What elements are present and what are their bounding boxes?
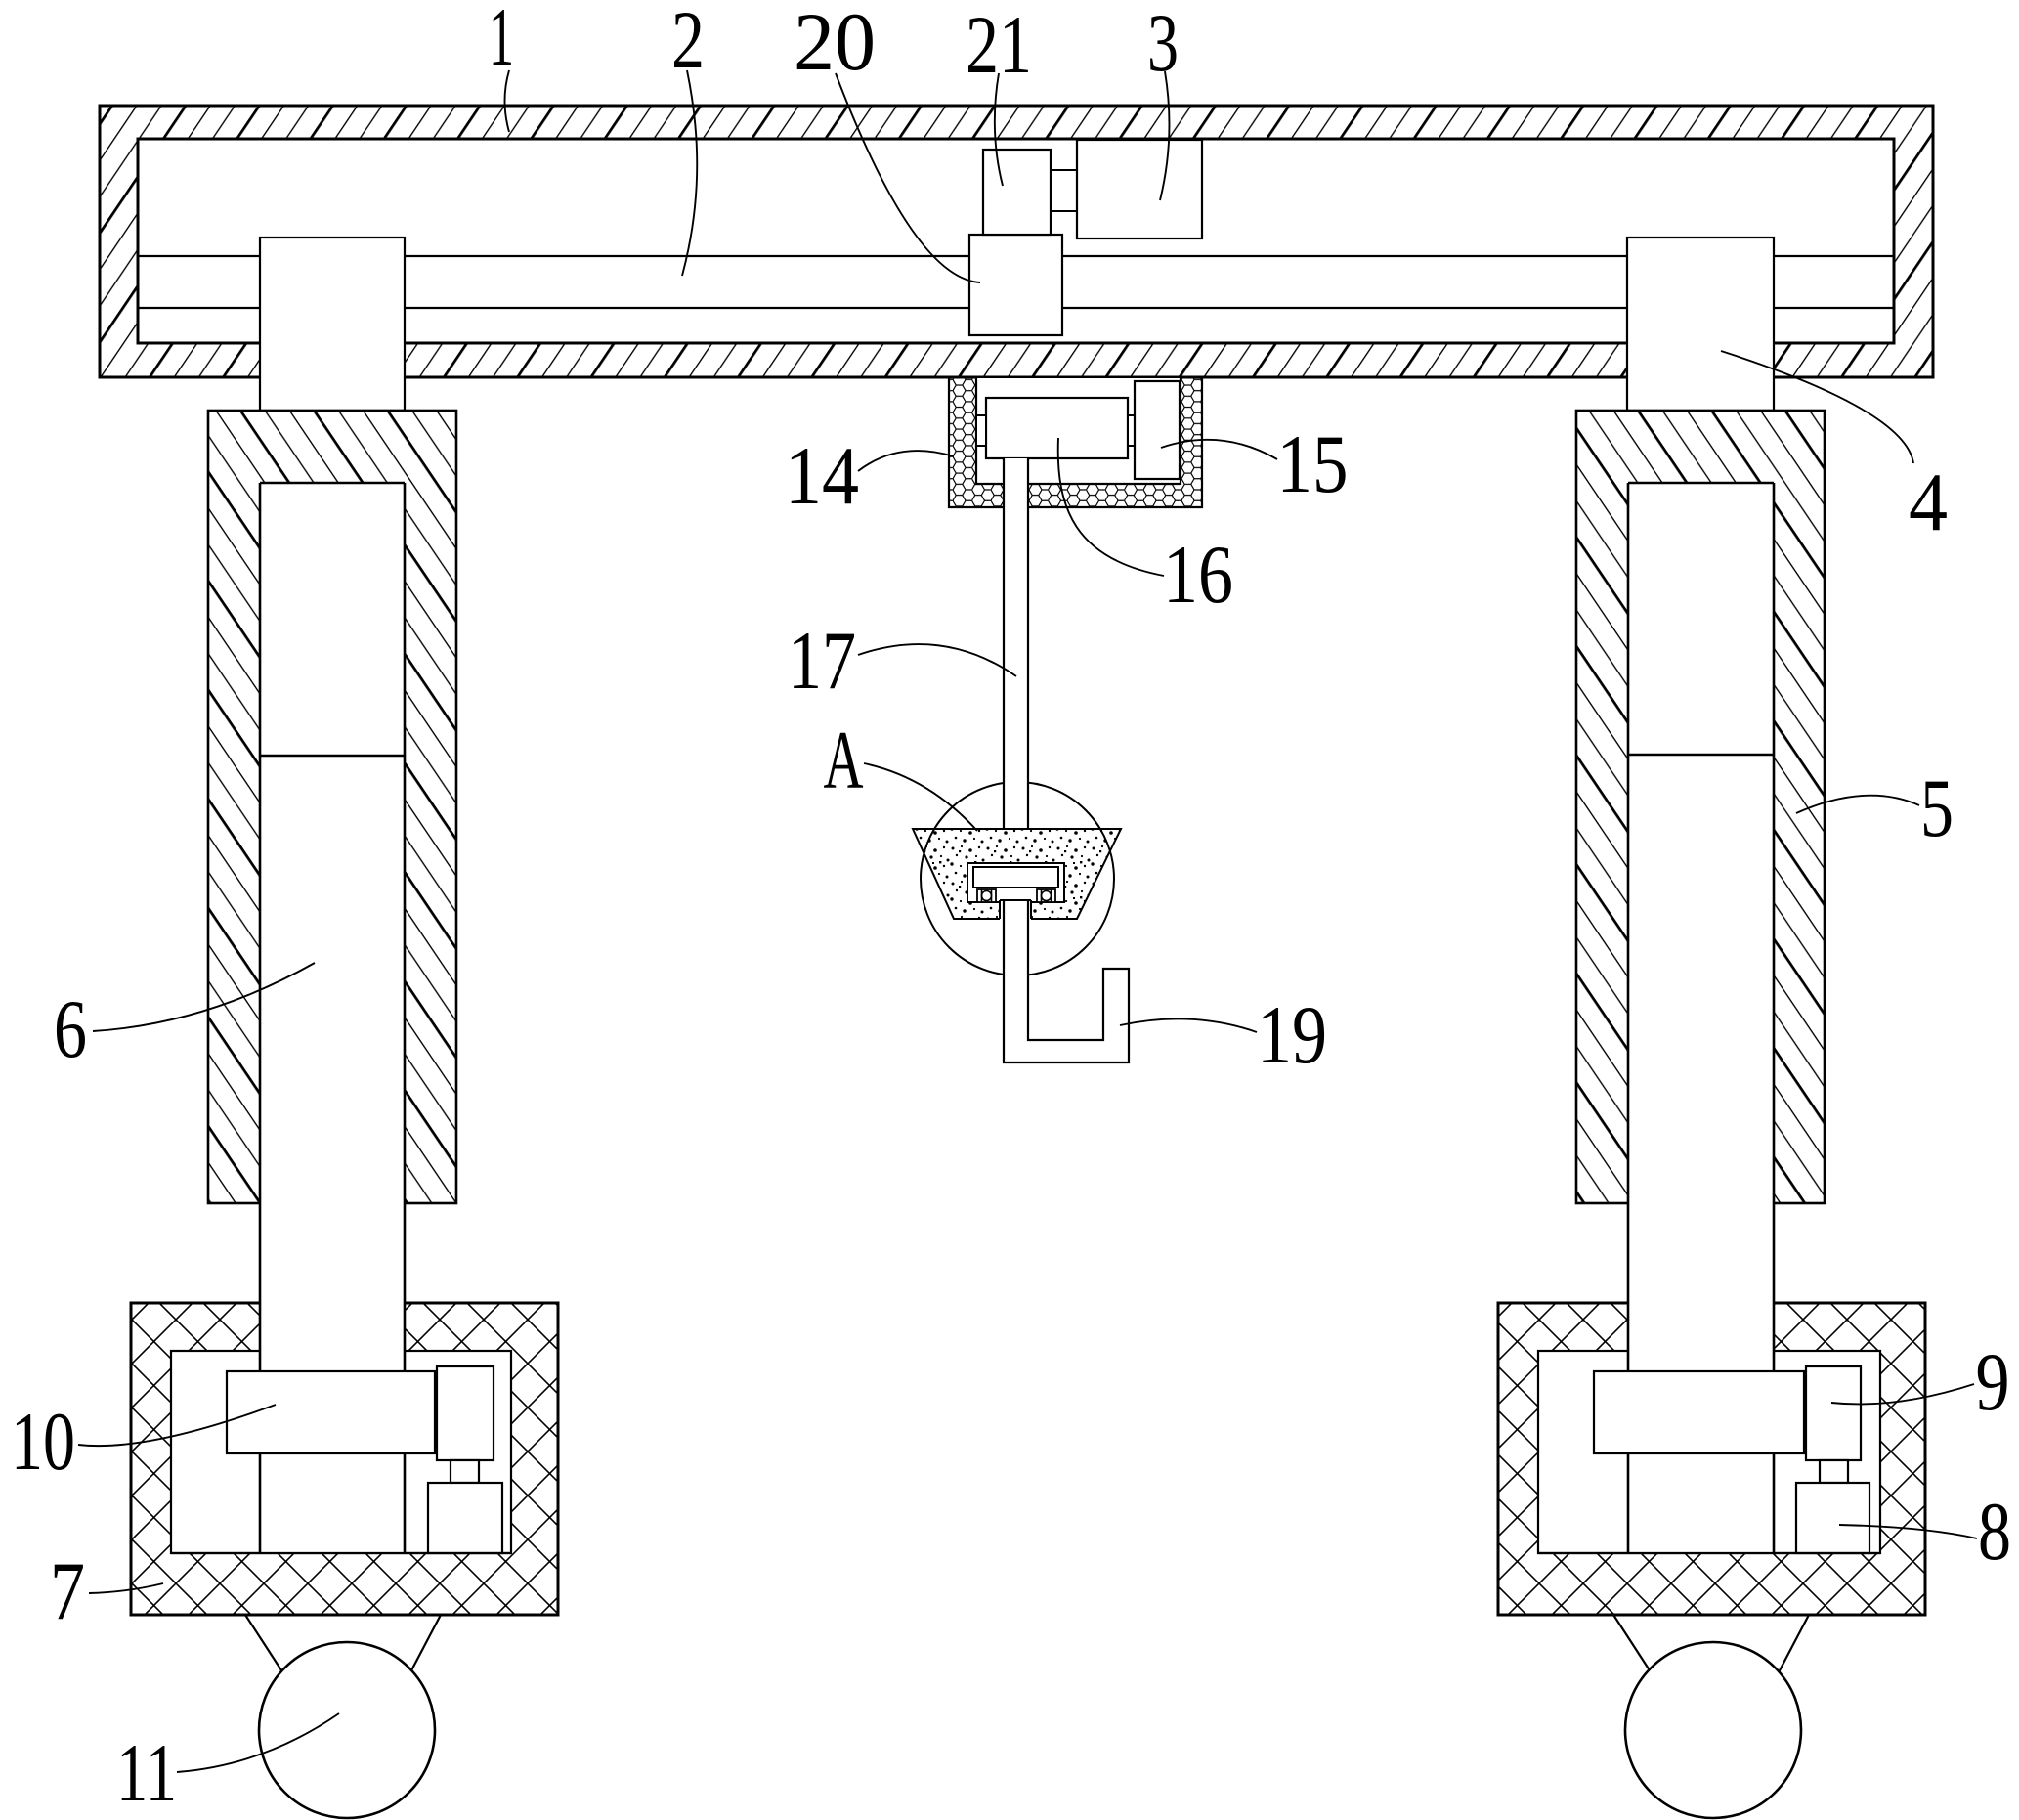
svg-text:11: 11	[116, 1727, 177, 1819]
svg-text:20: 20	[794, 0, 876, 88]
svg-text:19: 19	[1257, 989, 1327, 1081]
svg-text:10: 10	[11, 1396, 75, 1488]
svg-text:15: 15	[1277, 418, 1349, 510]
svg-text:1: 1	[489, 0, 514, 83]
svg-text:A: A	[824, 715, 864, 806]
svg-text:8: 8	[1978, 1486, 2011, 1578]
svg-text:17: 17	[788, 615, 856, 707]
svg-text:14: 14	[785, 430, 859, 522]
svg-text:7: 7	[50, 1545, 85, 1637]
svg-text:9: 9	[1976, 1336, 2010, 1428]
svg-text:6: 6	[54, 983, 87, 1075]
svg-text:16: 16	[1163, 529, 1233, 621]
svg-text:5: 5	[1920, 762, 1954, 854]
svg-text:4: 4	[1909, 456, 1948, 548]
svg-text:3: 3	[1147, 0, 1179, 89]
